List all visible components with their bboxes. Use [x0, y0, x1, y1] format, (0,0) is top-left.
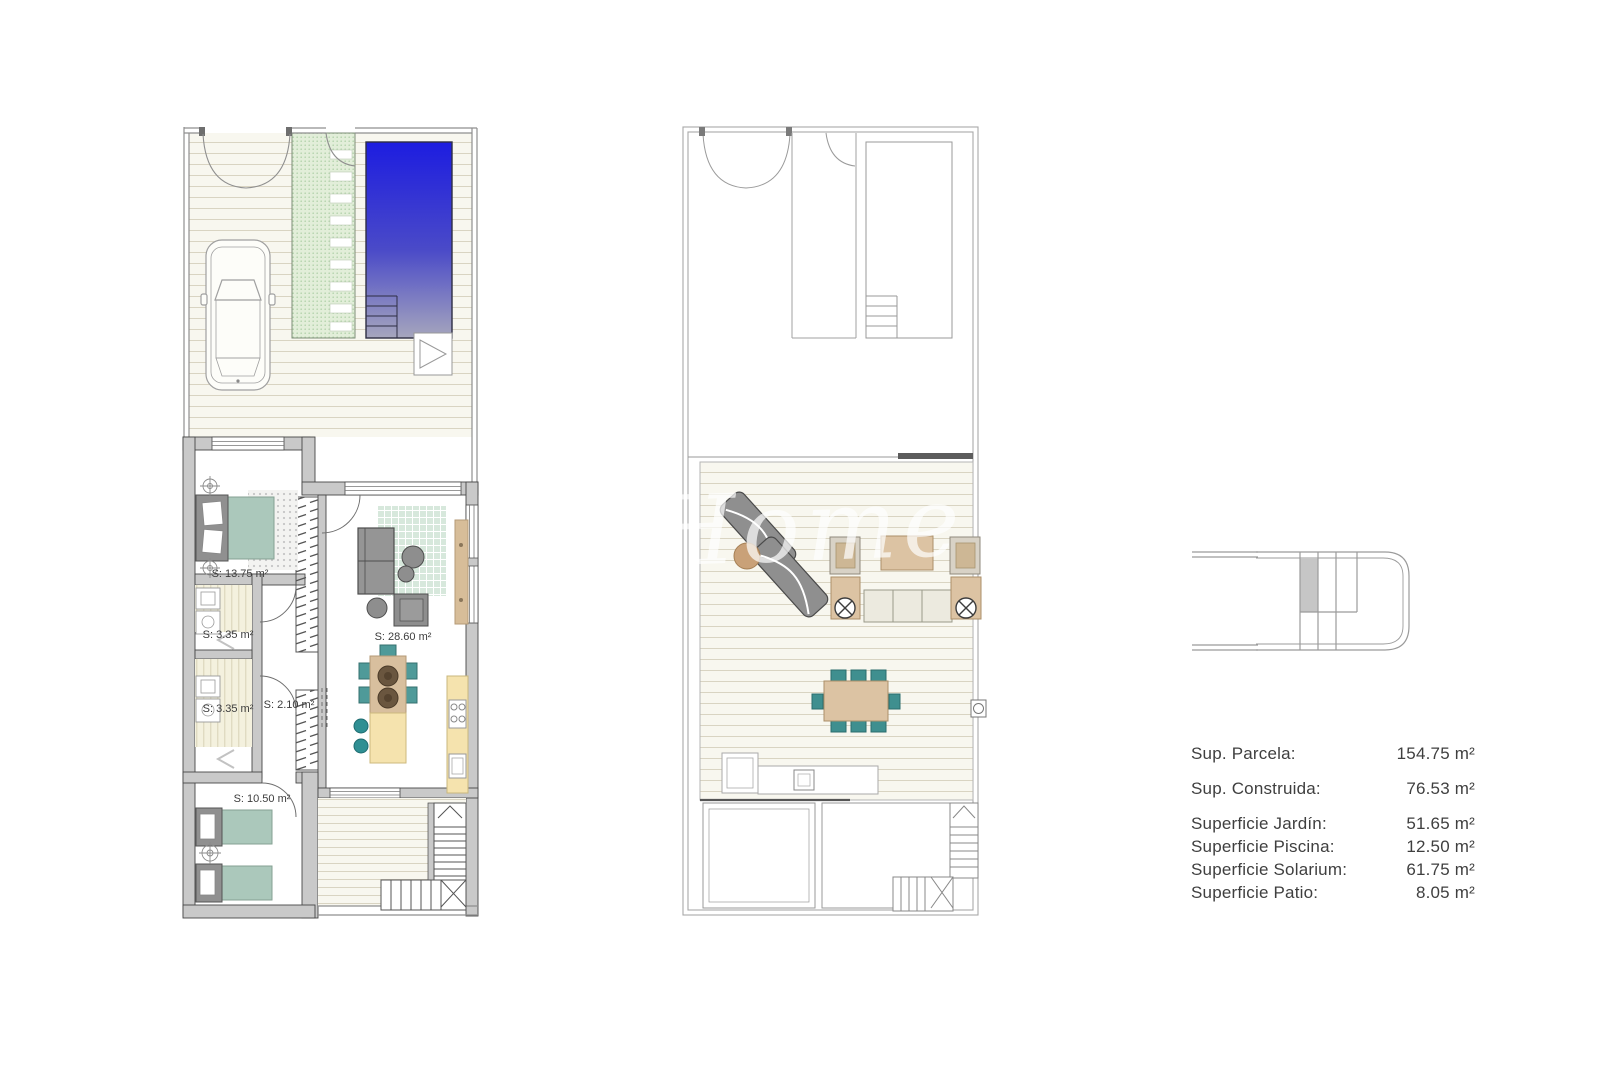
patio: [318, 798, 478, 915]
chair: [380, 645, 396, 657]
legend-row-parcela: Sup. Parcela: 154.75 m²: [1191, 744, 1475, 763]
swimming-pool: [366, 142, 452, 338]
chair: [812, 694, 823, 709]
legend-label: Superficie Solarium:: [1191, 860, 1347, 879]
single-bed: [220, 866, 272, 900]
room-label-living: S: 28.60 m²: [375, 631, 432, 643]
car-icon: [201, 240, 275, 390]
staircase-lower: [381, 880, 466, 910]
double-bed: [226, 497, 274, 559]
legend-value: 76.53 m²: [1406, 779, 1475, 798]
chair: [405, 663, 417, 679]
legend-row-jardin: Superficie Jardín: 51.65 m²: [1191, 814, 1475, 833]
outdoor-shower-icon: [414, 333, 452, 375]
stair-detail-shaded-cell: [1300, 558, 1318, 612]
surface-legend: Sup. Parcela: 154.75 m² Sup. Construida:…: [1191, 744, 1475, 906]
stair-section-detail: [1192, 552, 1409, 650]
legend-row-construida: Sup. Construida: 76.53 m²: [1191, 779, 1475, 798]
chair: [851, 670, 866, 681]
pool-outline: [866, 142, 952, 338]
pillow: [200, 814, 215, 839]
chair: [871, 670, 886, 681]
room-label-hall: S: 2.10 m²: [264, 699, 315, 711]
legend-row-piscina: Superficie Piscina: 12.50 m²: [1191, 837, 1475, 856]
floor-plan-sheet: S: 13.75 m² S: 3.35 m² S: 3.35 m² S: 2.1…: [0, 0, 1620, 1080]
living-room: [358, 506, 468, 626]
single-bed: [220, 810, 272, 844]
legend-label: Sup. Parcela:: [1191, 744, 1296, 763]
chair: [851, 721, 866, 732]
staircase-lower: [893, 877, 953, 911]
legend-value: 154.75 m²: [1397, 744, 1475, 763]
solarium-floor-plan: Home: [648, 127, 986, 915]
chair: [871, 721, 886, 732]
chair: [831, 670, 846, 681]
ceiling-light-icon: [200, 476, 220, 496]
chair: [359, 663, 371, 679]
bedroom2: [196, 808, 272, 902]
wardrobe: [296, 497, 318, 770]
pouf: [402, 546, 424, 568]
legend-label: Superficie Jardín:: [1191, 814, 1327, 833]
legend-value: 61.75 m²: [1406, 860, 1475, 879]
stepping-stones: [330, 150, 352, 331]
parasol-icon: [956, 598, 976, 618]
garden-gate-swing: [699, 127, 855, 188]
legend-value: 8.05 m²: [1416, 883, 1475, 902]
room-label-bedroom2: S: 10.50 m²: [234, 793, 291, 805]
floor-plan-drawing: S: 13.75 m² S: 3.35 m² S: 3.35 m² S: 2.1…: [0, 0, 1620, 1080]
sofa: [864, 590, 952, 622]
legend-value: 12.50 m²: [1406, 837, 1475, 856]
pillow: [202, 501, 223, 526]
pouf: [367, 598, 387, 618]
legend-row-solarium: Superficie Solarium: 61.75 m²: [1191, 860, 1475, 879]
legend-label: Sup. Construida:: [1191, 779, 1321, 798]
pouf: [398, 566, 414, 582]
dining-area: [354, 645, 417, 763]
staircase-up: [434, 803, 466, 880]
legend-row-patio: Superficie Patio: 8.05 m²: [1191, 883, 1475, 902]
chair: [405, 687, 417, 703]
dining-table: [824, 681, 888, 721]
legend-value: 51.65 m²: [1406, 814, 1475, 833]
room-label-bath2: S: 3.35 m²: [203, 703, 254, 715]
watermark: Home: [648, 466, 967, 589]
parasol-icon: [835, 598, 855, 618]
kitchen-counter: [447, 676, 468, 793]
legend-label: Superficie Piscina:: [1191, 837, 1335, 856]
stool: [354, 739, 368, 753]
sink-icon: [449, 754, 466, 778]
tv-console: [455, 520, 468, 624]
stool: [354, 719, 368, 733]
chair: [889, 694, 900, 709]
pillow: [200, 870, 215, 895]
chair: [359, 687, 371, 703]
chair: [831, 721, 846, 732]
kitchen-island: [370, 713, 406, 763]
wall-unit-icon: [971, 700, 986, 717]
room-label-bedroom1: S: 13.75 m²: [212, 568, 269, 580]
room-label-bath1: S: 3.35 m²: [203, 629, 254, 641]
shower-icon: [218, 750, 234, 768]
master-bedroom: [196, 476, 298, 578]
ground-floor-plan: S: 13.75 m² S: 3.35 m² S: 3.35 m² S: 2.1…: [183, 127, 478, 918]
legend-label: Superficie Patio:: [1191, 883, 1318, 902]
staircase-up: [950, 803, 978, 878]
pillow: [202, 529, 223, 554]
